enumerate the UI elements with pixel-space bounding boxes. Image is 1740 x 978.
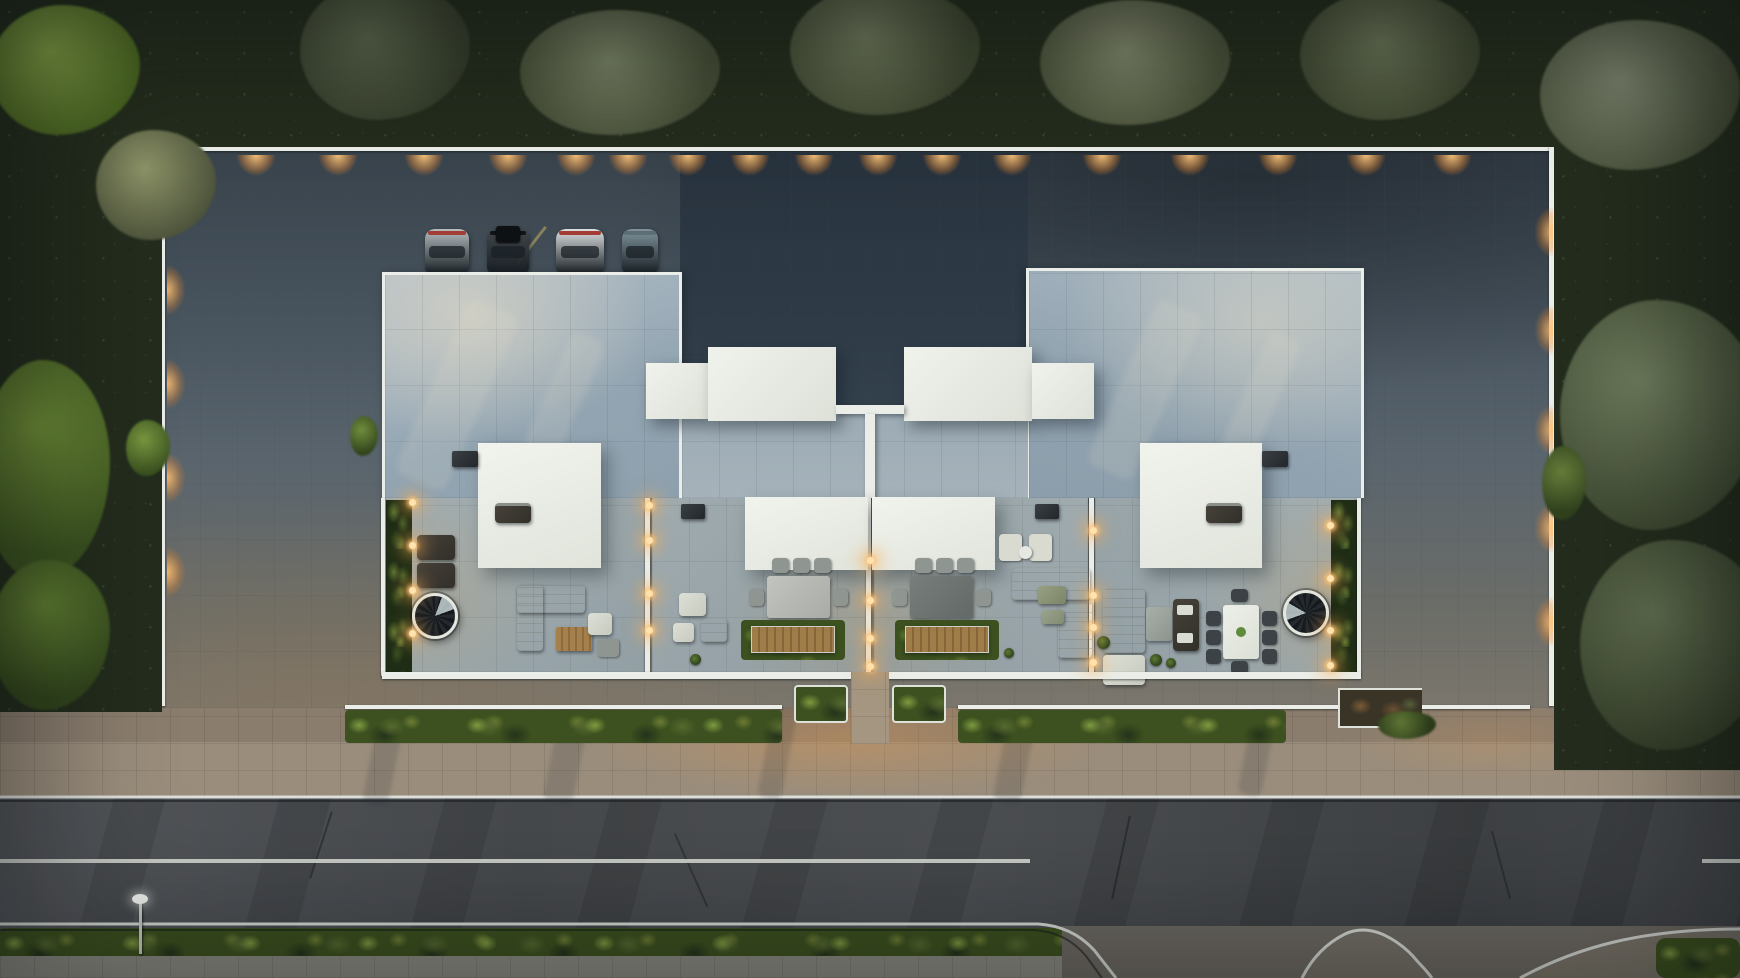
- tree: [1560, 300, 1740, 530]
- vegetation-layer: [0, 0, 1740, 978]
- aerial-render: [0, 0, 1740, 978]
- tree: [96, 130, 216, 240]
- overhanging-bush: [126, 420, 170, 476]
